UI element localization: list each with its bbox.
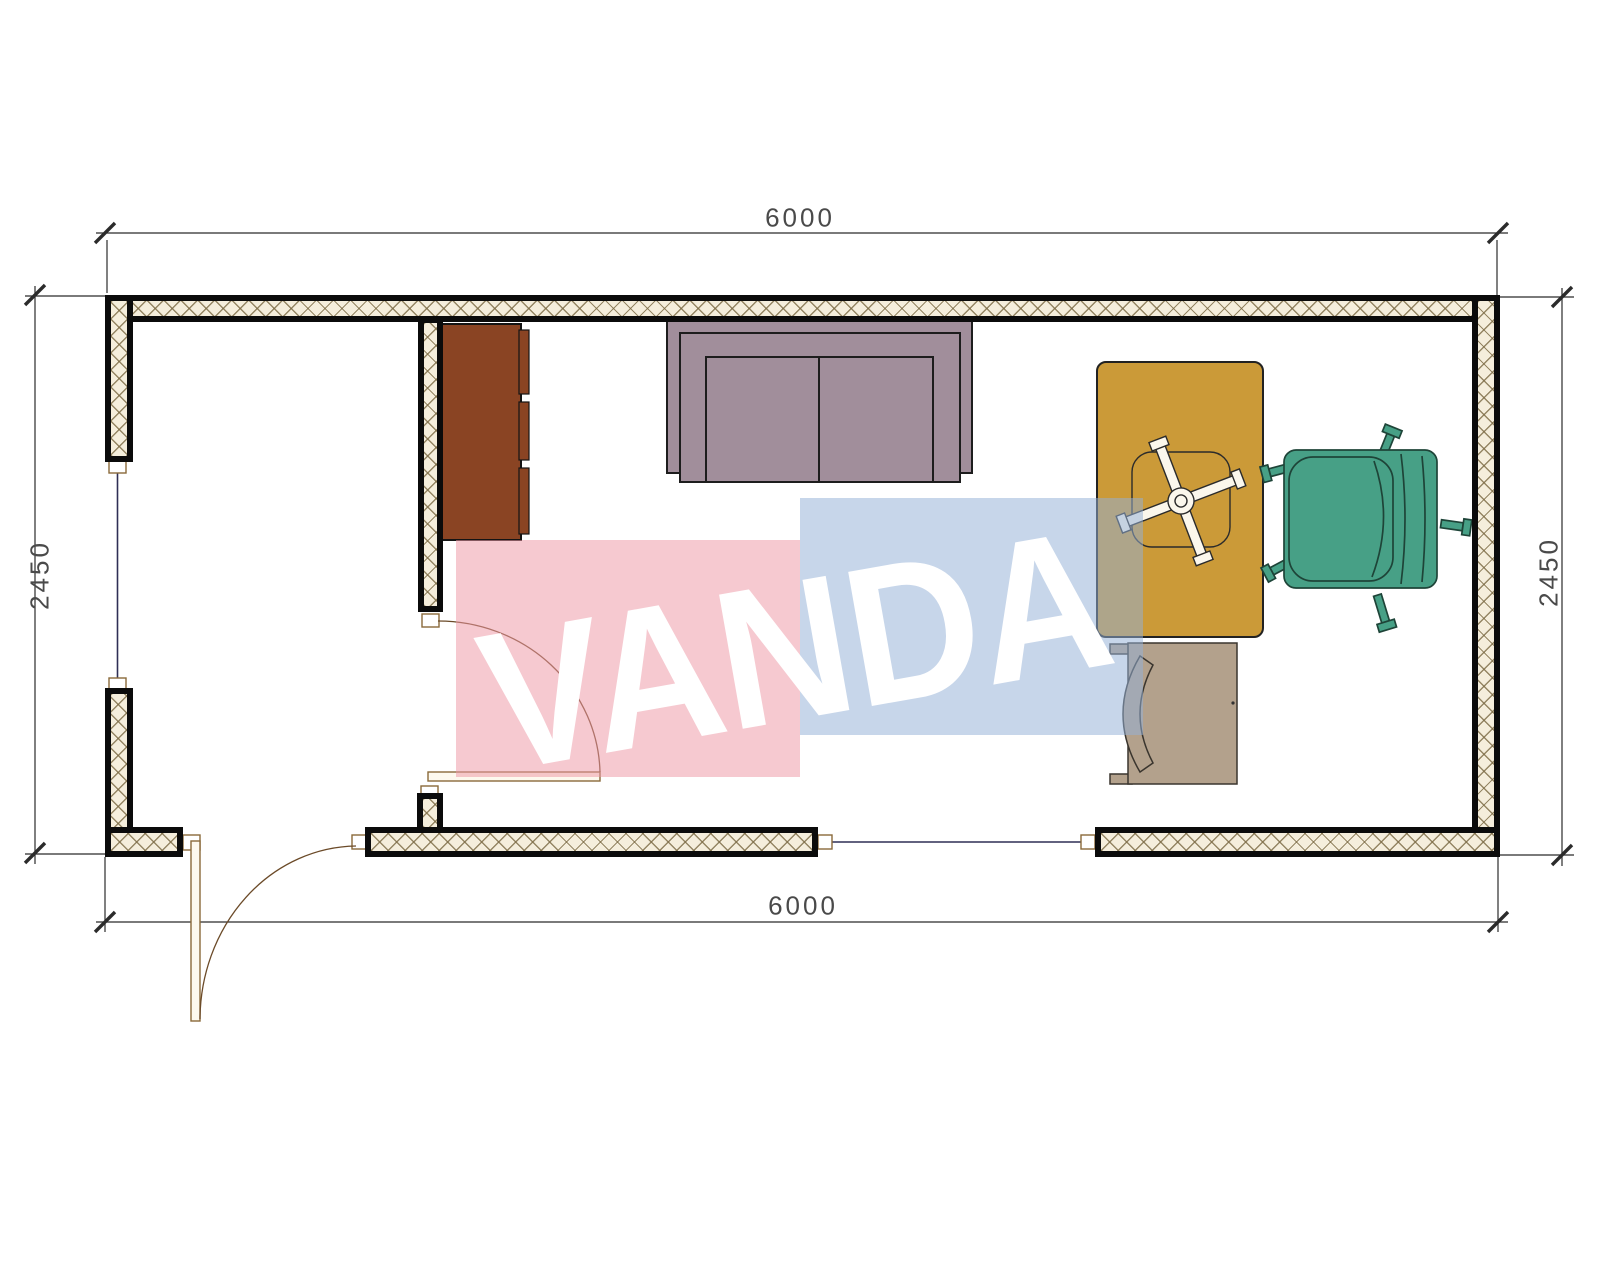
- wall-bottom-right: [1095, 827, 1500, 857]
- cabinet: [441, 324, 529, 540]
- wall-partition: [418, 317, 443, 612]
- door-exterior-swing-arc: [200, 846, 356, 1019]
- wall-right: [1472, 295, 1500, 857]
- floor-plan-canvas: VANDA 6000 6000 2450 2450: [0, 0, 1600, 1280]
- sofa: [667, 320, 972, 482]
- wall-top: [105, 295, 1500, 322]
- dimension-right-label: 2450: [1534, 537, 1565, 607]
- door-interior-frame-top: [422, 614, 439, 627]
- dimension-bottom-label: 6000: [768, 891, 838, 922]
- dimension-left-label: 2450: [25, 540, 56, 610]
- window-bottom: [818, 835, 1095, 849]
- door-exterior: [183, 835, 367, 1021]
- window-left: [109, 460, 126, 691]
- wall-bottom-left: [105, 827, 183, 857]
- dimension-top-label: 6000: [765, 203, 835, 234]
- wall-door-stub: [417, 793, 443, 833]
- wall-left-upper: [105, 295, 133, 462]
- door-exterior-leaf: [191, 841, 200, 1021]
- armchair-green: [1260, 424, 1472, 632]
